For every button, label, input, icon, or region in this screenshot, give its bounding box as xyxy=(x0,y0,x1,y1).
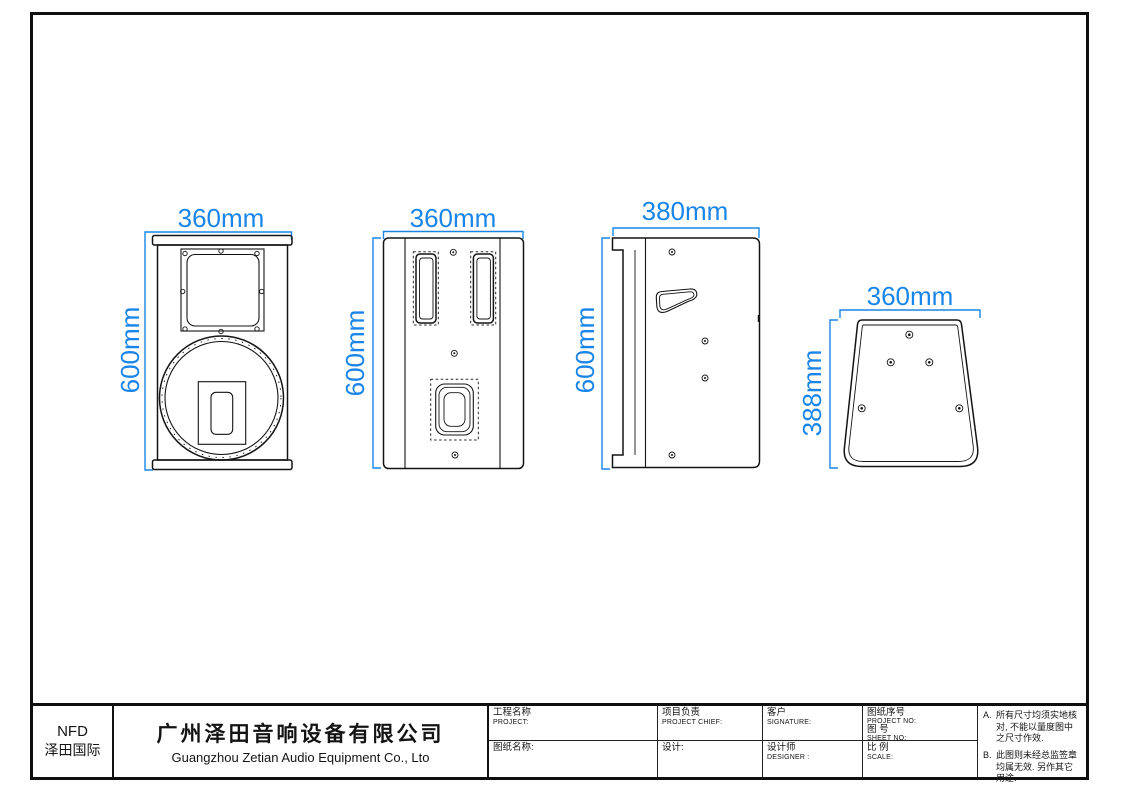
side-screw-holes xyxy=(669,249,708,458)
rear-right-port xyxy=(471,252,496,325)
company-cell: 广州泽田音响设备有限公司 Guangzhou Zetian Audio Equi… xyxy=(112,706,487,777)
front-port-opening xyxy=(211,392,233,434)
side-handle-cutout xyxy=(656,289,697,312)
sheet-no-label-cn: 图 号 xyxy=(867,725,973,735)
front-port-plate xyxy=(198,382,245,445)
bottom-width-dimension: 360mm xyxy=(867,281,954,311)
horn-frame xyxy=(181,249,264,331)
project-label-en: PROJECT: xyxy=(493,719,653,727)
bottom-plate-inner-line xyxy=(849,325,974,462)
customer-column: 客户 SIGNATURE: 设计师 DESIGNER : xyxy=(762,706,862,777)
side-width-dimension: 380mm xyxy=(642,196,729,226)
horn-screw-holes xyxy=(181,249,264,334)
design-field: 设计: xyxy=(658,740,762,777)
bottom-plate-outline xyxy=(844,320,978,467)
rear-width-dimension: 360mm xyxy=(410,203,497,233)
front-top-cap xyxy=(153,236,293,246)
project-chief-label-en: PROJECT CHIEF: xyxy=(662,719,758,727)
bottom-view: 360mm 388mm xyxy=(797,281,980,468)
project-field: 工程名称 PROJECT: xyxy=(489,706,657,740)
front-view: 360mm 600mm xyxy=(115,203,292,470)
brand-name-cn: 泽田国际 xyxy=(45,742,101,760)
rear-height-dimension: 600mm xyxy=(340,310,370,397)
customer-label-cn: 客户 xyxy=(767,708,858,719)
designer-label-en: DESIGNER : xyxy=(767,754,858,762)
customer-field: 客户 SIGNATURE: xyxy=(763,706,862,740)
side-height-dimension: 600mm xyxy=(570,307,600,394)
side-width-dimension-line xyxy=(613,228,759,238)
front-height-dimension: 600mm xyxy=(115,307,145,394)
side-height-dimension-line xyxy=(602,238,610,469)
woofer-rim-ticks xyxy=(162,339,281,458)
company-name-cn: 广州泽田音响设备有限公司 xyxy=(157,718,445,748)
note-b-text: 此图则未经总监签章均属无效. 另作其它用途. xyxy=(996,750,1081,785)
project-no-field: 图纸序号 PROJECT NO: 图 号 SHEET NO: xyxy=(863,706,977,740)
numbering-column: 图纸序号 PROJECT NO: 图 号 SHEET NO: 比 例 SCALE… xyxy=(862,706,977,777)
company-name-en: Guangzhou Zetian Audio Equipment Co., Lt… xyxy=(171,750,429,765)
project-label-cn: 工程名称 xyxy=(493,708,653,719)
rear-view: 360mm 600mm xyxy=(340,203,524,469)
scale-field: 比 例 SCALE: xyxy=(863,740,977,777)
customer-label-en: SIGNATURE: xyxy=(767,719,858,727)
drawing-name-label: 图纸名称: xyxy=(493,743,653,754)
rear-height-dimension-line xyxy=(373,238,381,468)
scale-label-cn: 比 例 xyxy=(867,743,973,754)
designer-field: 设计师 DESIGNER : xyxy=(763,740,862,777)
project-column: 工程名称 PROJECT: 图纸名称: xyxy=(487,706,657,777)
horn-opening xyxy=(187,255,259,327)
design-label: 设计: xyxy=(662,743,758,754)
title-block: NFD 泽田国际 广州泽田音响设备有限公司 Guangzhou Zetian A… xyxy=(33,703,1086,777)
woofer-outer-ring xyxy=(160,336,284,460)
scale-label-en: SCALE: xyxy=(867,754,973,762)
side-view: 380mm 600mm xyxy=(570,196,760,469)
note-a: A. 所有尺寸均须实地核对, 不能以量度图中之尺寸作效. xyxy=(983,710,1081,745)
rear-terminal-cup xyxy=(431,379,479,440)
bottom-width-dimension-line xyxy=(840,310,980,318)
drawing-name-field: 图纸名称: xyxy=(489,740,657,777)
bottom-height-dimension: 388mm xyxy=(797,350,827,437)
chief-column: 项目负责 PROJECT CHIEF: 设计: xyxy=(657,706,762,777)
project-chief-field: 项目负责 PROJECT CHIEF: xyxy=(658,706,762,740)
woofer-inner-ring xyxy=(165,342,278,455)
front-width-dimension: 360mm xyxy=(178,203,265,233)
front-bottom-cap xyxy=(153,460,293,470)
bottom-height-dimension-line xyxy=(830,320,838,468)
notes-cell: A. 所有尺寸均须实地核对, 不能以量度图中之尺寸作效. B. 此图则未经总监签… xyxy=(977,706,1086,777)
note-b: B. 此图则未经总监签章均属无效. 另作其它用途. xyxy=(983,750,1081,785)
front-body-outline xyxy=(158,245,288,460)
note-a-text: 所有尺寸均须实地核对, 不能以量度图中之尺寸作效. xyxy=(996,710,1081,745)
logo-cell: NFD 泽田国际 xyxy=(33,706,112,777)
designer-label-cn: 设计师 xyxy=(767,743,858,754)
project-no-label-cn: 图纸序号 xyxy=(867,708,973,718)
brand-name: NFD xyxy=(57,723,88,742)
project-chief-label-cn: 项目负责 xyxy=(662,708,758,719)
rear-left-port xyxy=(413,252,438,325)
bottom-screw-holes xyxy=(858,331,963,412)
note-b-label: B. xyxy=(983,750,996,785)
note-a-label: A. xyxy=(983,710,996,745)
drawing-views: 360mm 600mm 360mm 600mm xyxy=(0,0,1122,793)
